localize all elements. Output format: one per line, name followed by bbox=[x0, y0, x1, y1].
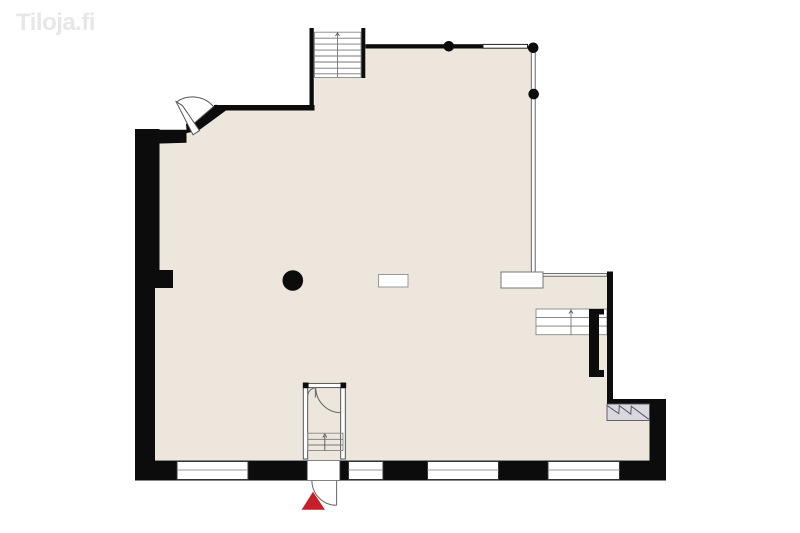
svg-text:Tiloja.fi: Tiloja.fi bbox=[16, 9, 95, 36]
